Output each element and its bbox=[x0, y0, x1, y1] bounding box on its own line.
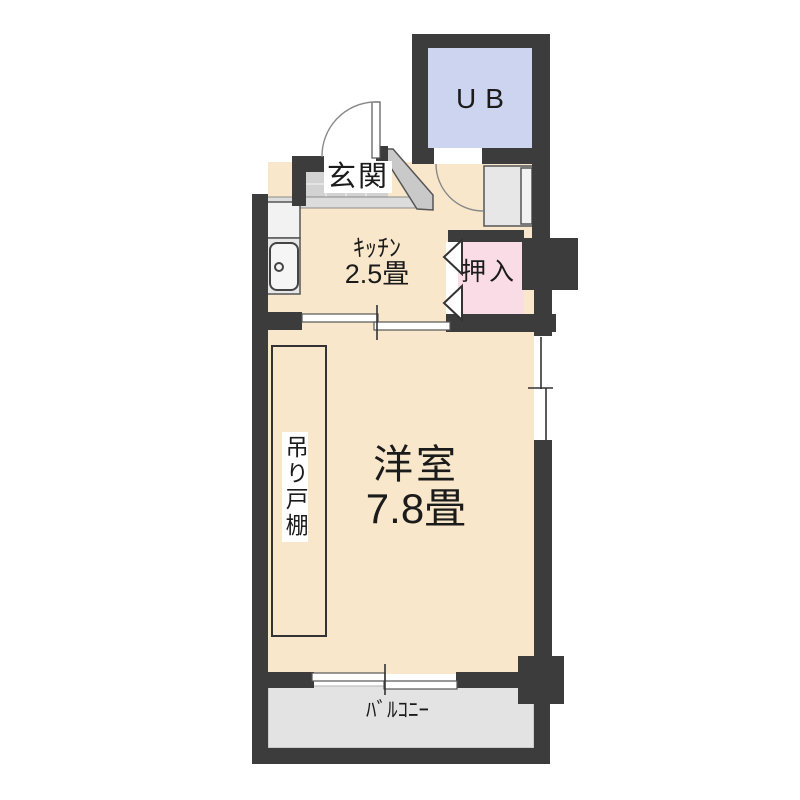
kitchen-counter bbox=[266, 202, 300, 238]
unit-bath-label: UB bbox=[442, 84, 518, 113]
floor-plan: UB 玄関 ｷｯﾁﾝ 2.5畳 押入 洋室 7.8畳 吊り戸棚 ﾊﾞﾙｺﾆｰ bbox=[0, 0, 800, 800]
hanging-cupboard-label: 吊り戸棚 bbox=[282, 432, 308, 542]
balcony-label: ﾊﾞﾙｺﾆｰ bbox=[315, 700, 480, 722]
wall-right-mid bbox=[534, 290, 552, 336]
wall-bottom bbox=[252, 748, 550, 764]
entrance-door-arc-icon bbox=[322, 102, 374, 157]
wall-ub-bottom-right bbox=[482, 148, 550, 164]
wall-right-lower bbox=[534, 440, 552, 658]
balcony-window-icon bbox=[384, 681, 457, 689]
wall-closet-top bbox=[448, 230, 524, 242]
entrance-door-leaf-icon bbox=[372, 102, 380, 158]
sink-drain-icon bbox=[275, 263, 283, 271]
floor-plan-drawing bbox=[0, 0, 800, 800]
western-room-label: 洋室 bbox=[316, 444, 516, 486]
sliding-door-kitchen-icon bbox=[302, 314, 378, 322]
pillar-closet bbox=[522, 238, 578, 290]
wall-ub-left bbox=[412, 34, 428, 164]
appliance-space-door bbox=[521, 168, 532, 224]
kitchen-size-label: 2.5畳 bbox=[316, 260, 438, 288]
sliding-door-kitchen-icon bbox=[374, 322, 450, 330]
wall-ub-top bbox=[412, 34, 550, 48]
western-room-size-label: 7.8畳 bbox=[316, 487, 516, 531]
wall-left bbox=[252, 194, 268, 764]
ub-door-opening bbox=[434, 148, 482, 164]
wall-partition-left bbox=[268, 312, 302, 330]
wall-ub-bottom-left bbox=[412, 148, 434, 164]
balcony-window-icon bbox=[312, 673, 385, 681]
pillar-bottom-right bbox=[518, 656, 564, 704]
wall-right-upper bbox=[532, 34, 550, 240]
wall-room-bottom-left bbox=[268, 672, 314, 688]
kitchen-label: ｷｯﾁﾝ bbox=[316, 236, 438, 261]
closet-label: 押入 bbox=[455, 259, 523, 285]
entrance-label: 玄関 bbox=[324, 161, 392, 193]
wall-entrance-jamb-left bbox=[292, 156, 306, 206]
wall-room-bottom-right bbox=[456, 672, 518, 688]
